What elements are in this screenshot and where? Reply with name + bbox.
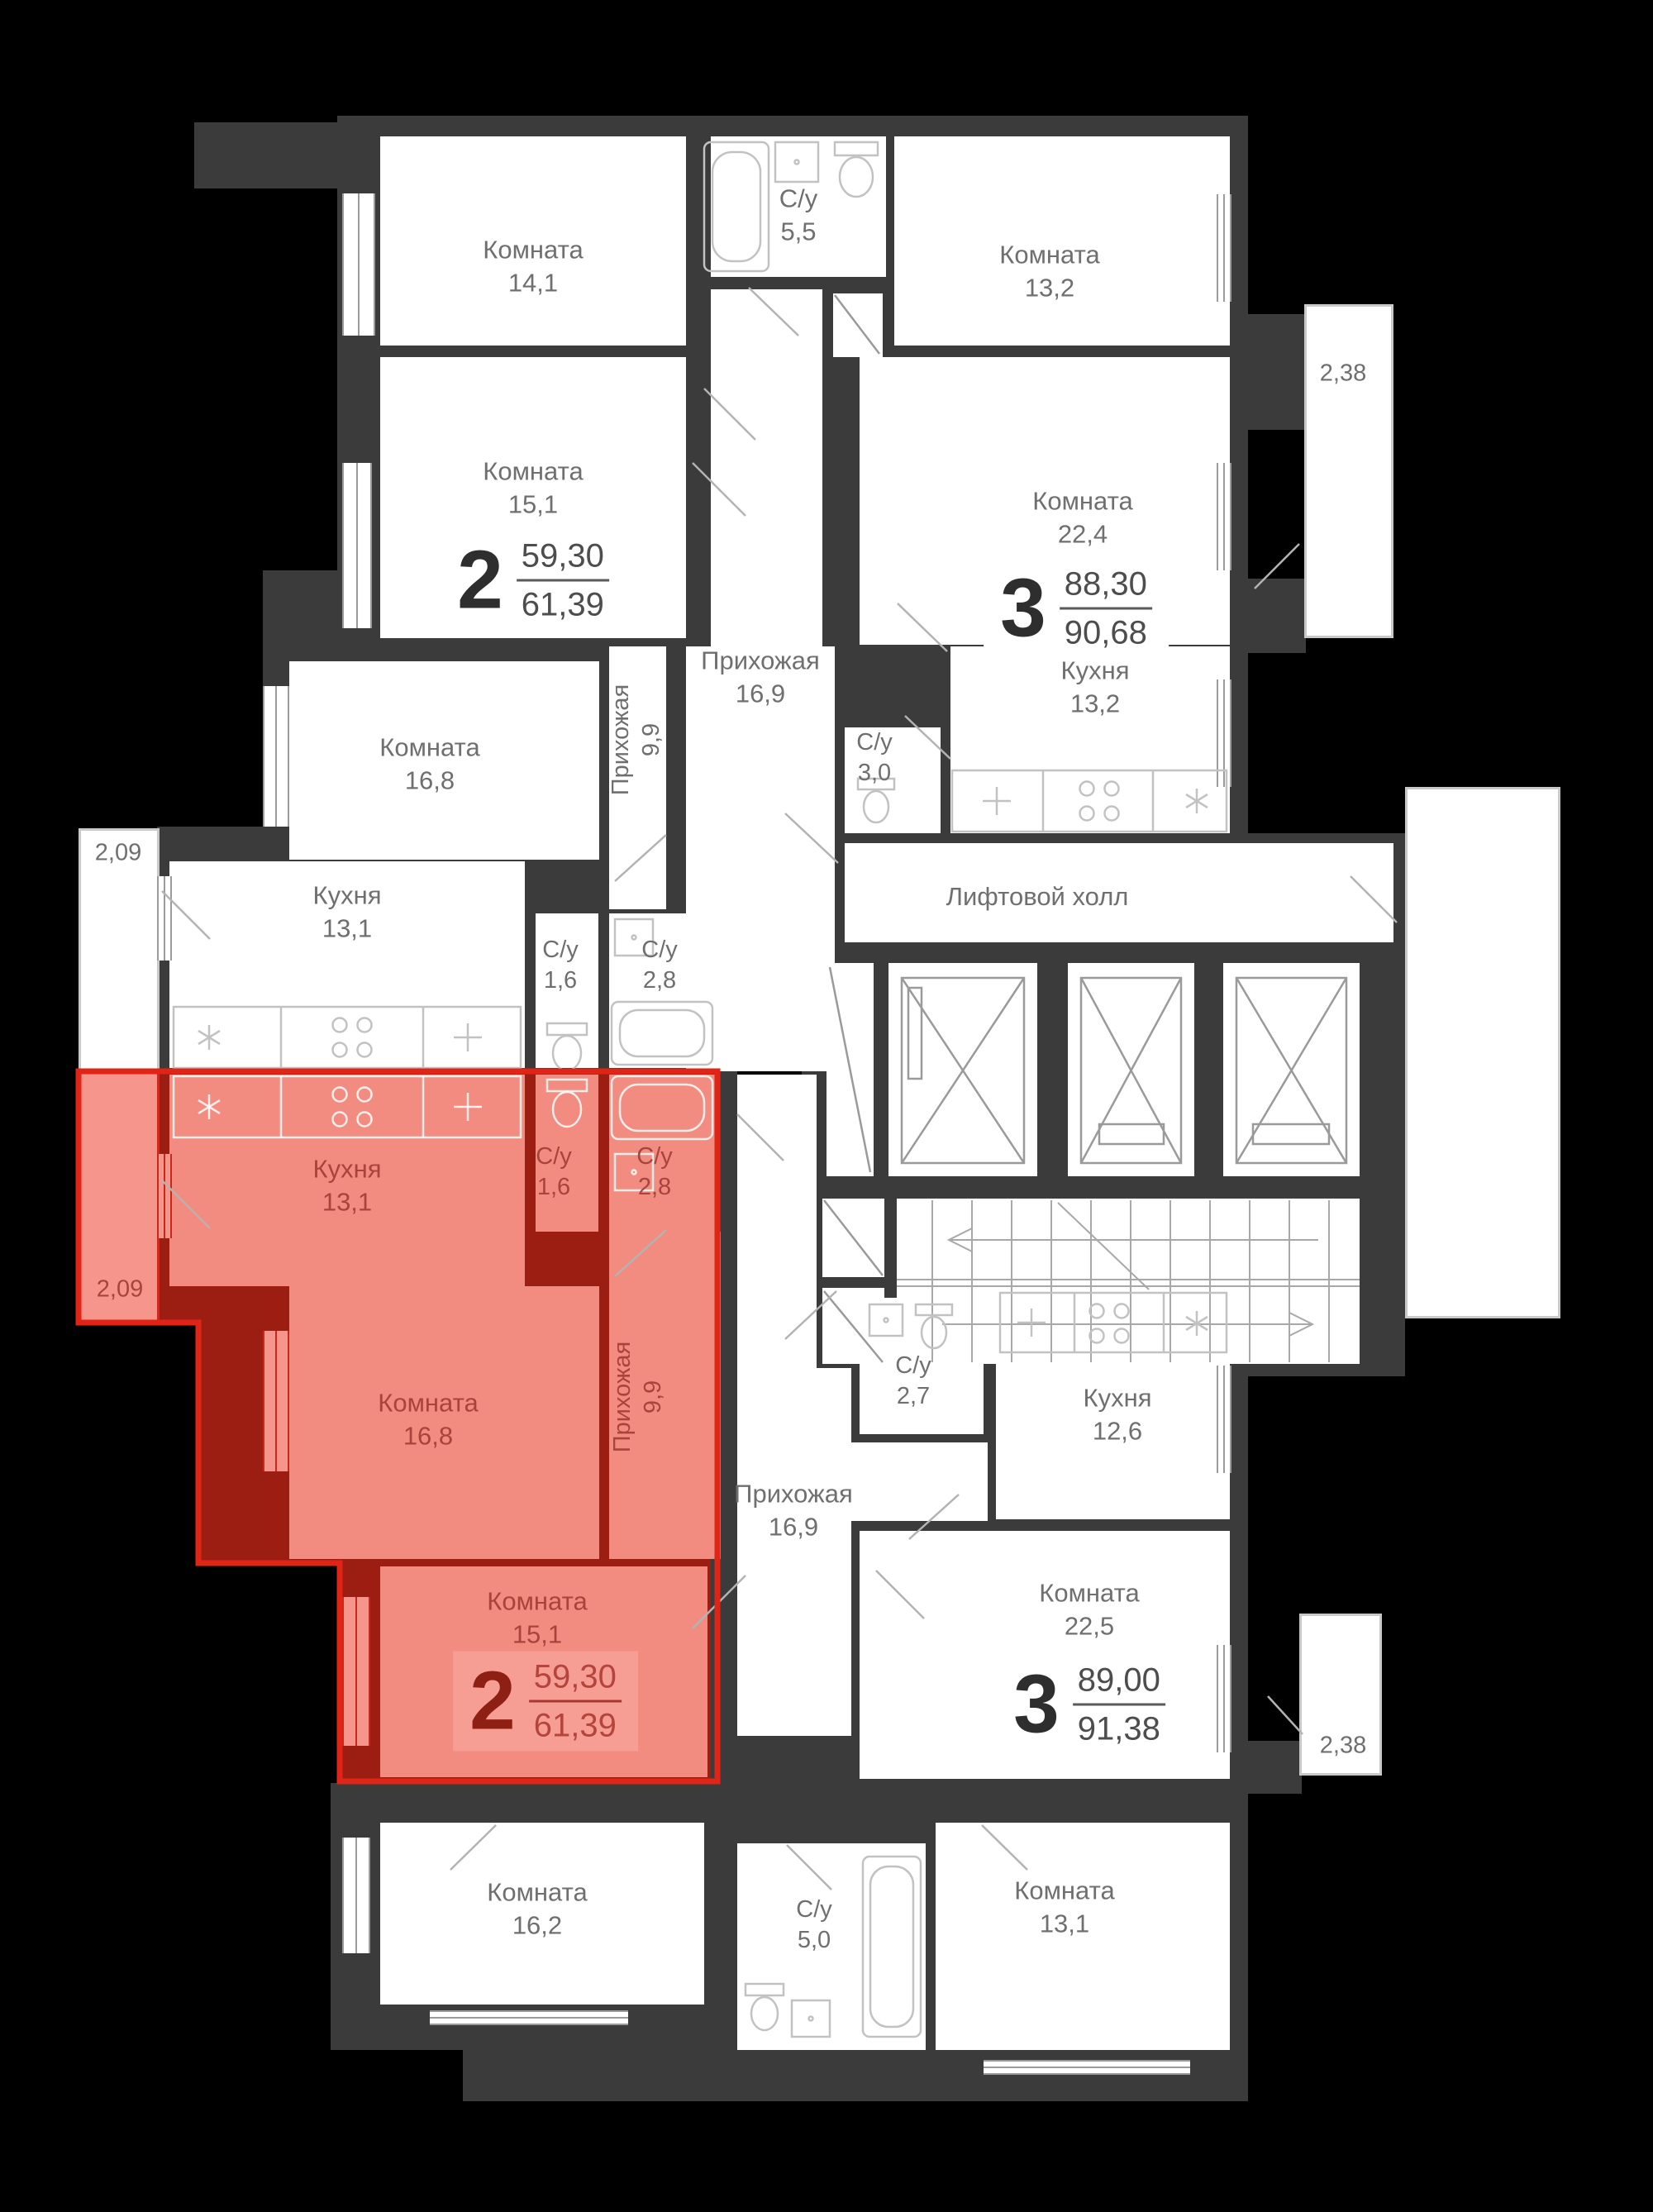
window xyxy=(1217,679,1231,787)
window xyxy=(1217,194,1231,302)
window-red xyxy=(263,1331,289,1471)
room-label: Комната22,4 xyxy=(1032,484,1132,550)
shaft-small-1 xyxy=(822,1199,884,1277)
window-red xyxy=(342,1597,370,1746)
window xyxy=(157,876,172,961)
window xyxy=(1217,1366,1231,1473)
room-label-selected: Кухня13,1 xyxy=(313,1152,382,1218)
room-label-selected: Комната15,1 xyxy=(487,1585,587,1650)
room-label: Прихожая16,9 xyxy=(701,644,820,709)
window xyxy=(1217,1645,1231,1752)
room-label: Комната22,5 xyxy=(1039,1576,1139,1642)
window xyxy=(1217,463,1231,570)
room-label: С/у2,7 xyxy=(895,1351,931,1412)
balcony-label-selected: 2,09 xyxy=(97,1274,143,1304)
wall-slab-bottom-edge xyxy=(463,2050,1248,2101)
apartment-badge-3-bottom[interactable]: 3 89,0091,38 xyxy=(997,1655,1182,1755)
room-label: С/у5,5 xyxy=(779,182,818,247)
lift-hall-label: Лифтовой холл xyxy=(946,880,1129,913)
apartment-badge-2-top[interactable]: 2 59,3061,39 xyxy=(441,531,626,631)
elevator-shaft-small xyxy=(826,963,874,1176)
hall-prihozhaya-16-9-top xyxy=(686,646,835,1071)
room-label-selected: С/у1,6 xyxy=(536,1142,572,1203)
corridor-core-lower xyxy=(737,1368,851,1736)
room-label: Комната13,1 xyxy=(1014,1874,1114,1939)
room-label: Прихожая9,9 xyxy=(606,684,667,795)
balcony-label: 2,38 xyxy=(1320,1730,1366,1761)
wall-bridge-balcony-tr-1 xyxy=(1244,314,1306,430)
window xyxy=(430,2010,628,2025)
corridor-core-upper xyxy=(737,1075,817,1368)
room-label-selected: Прихожая9,9 xyxy=(607,1342,669,1452)
elevator-1 xyxy=(888,963,1037,1176)
room-label: С/у2,8 xyxy=(641,935,678,996)
wall-stub-top-left xyxy=(194,122,343,188)
window xyxy=(342,463,372,628)
terrace-right xyxy=(1405,787,1560,1318)
wall-bridge-balcony-br xyxy=(1244,1741,1302,1794)
room-label-selected: Комната16,8 xyxy=(378,1386,478,1452)
room-label: С/у1,6 xyxy=(542,935,579,996)
room-label: С/у3,0 xyxy=(856,727,893,789)
elevator-2 xyxy=(1068,963,1194,1176)
building-notch xyxy=(198,1563,340,1783)
wall-slab-balcony-shoulder xyxy=(157,827,264,860)
room-label: Прихожая16,9 xyxy=(734,1477,853,1542)
window xyxy=(263,686,289,827)
room-label: Комната16,8 xyxy=(379,731,479,796)
apartment-badge-3-top[interactable]: 3 88,3090,68 xyxy=(984,559,1169,659)
corridor-elbow xyxy=(851,1442,988,1521)
apartment-badge-2-selected[interactable]: 2 59,3061,39 xyxy=(453,1652,638,1752)
floor-plan: Комната14,1 С/у5,5 Комната13,2 Комната15… xyxy=(0,0,1653,2212)
elevator-3 xyxy=(1223,963,1360,1176)
room-label-selected: С/у2,8 xyxy=(636,1142,673,1203)
balcony-top-right xyxy=(1304,304,1393,638)
room-label: Кухня12,6 xyxy=(1084,1381,1152,1447)
window xyxy=(342,193,375,336)
window xyxy=(342,1838,370,1953)
hall-top-area xyxy=(711,289,822,646)
window xyxy=(984,2060,1190,2075)
balcony-label: 2,09 xyxy=(95,837,141,868)
balcony-label: 2,38 xyxy=(1320,358,1366,389)
room-label: Комната14,1 xyxy=(483,233,583,298)
room-label: Комната13,2 xyxy=(999,238,1099,303)
room-label: С/у5,0 xyxy=(796,1895,832,1956)
room-label: Комната15,1 xyxy=(483,455,583,520)
room-label: Комната16,2 xyxy=(487,1876,587,1941)
room-label: Кухня13,1 xyxy=(313,879,382,944)
window-red xyxy=(157,1154,172,1238)
wall-corridor-left xyxy=(721,1071,737,1278)
wall-bridge-balcony-tr-2 xyxy=(1244,579,1306,653)
room-label: Кухня13,2 xyxy=(1061,654,1130,719)
closet-top xyxy=(833,293,883,357)
